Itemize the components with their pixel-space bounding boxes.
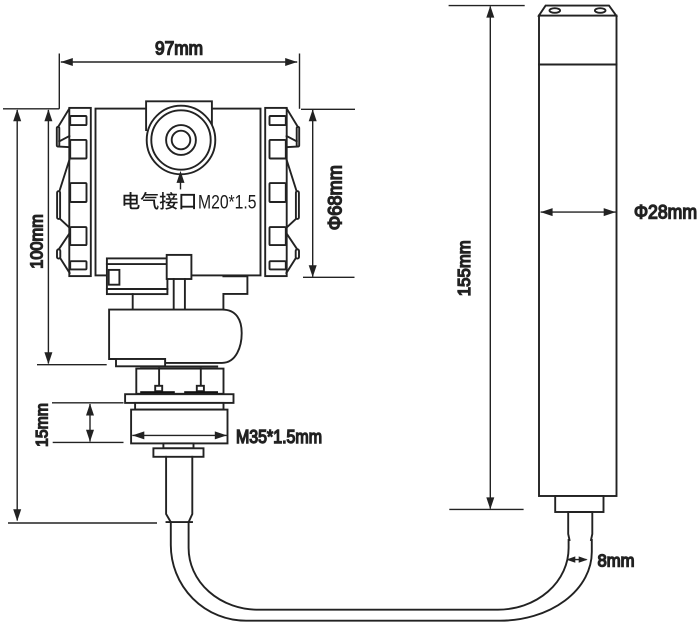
svg-text:M35*1.5mm: M35*1.5mm: [236, 427, 322, 447]
svg-text:8mm: 8mm: [598, 551, 635, 571]
svg-text:Φ68mm: Φ68mm: [326, 165, 347, 230]
svg-text:Φ28mm: Φ28mm: [634, 203, 697, 224]
svg-text:97mm: 97mm: [155, 39, 203, 59]
svg-text:100mm: 100mm: [27, 214, 47, 269]
svg-text:155mm: 155mm: [454, 240, 474, 296]
svg-text:15mm: 15mm: [32, 403, 51, 447]
svg-text:M20*1.5: M20*1.5: [198, 193, 257, 214]
